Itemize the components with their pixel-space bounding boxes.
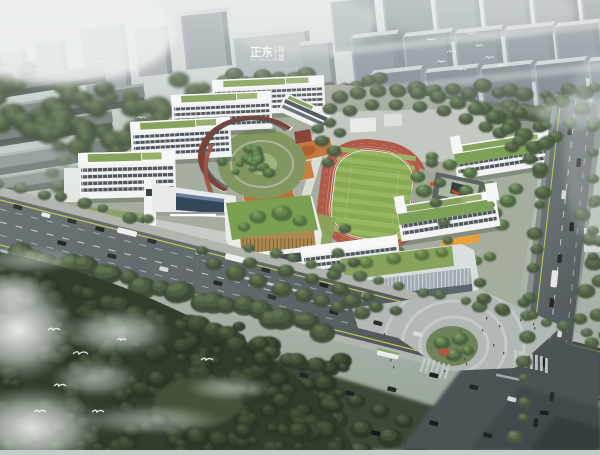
svg-text:视: 视 (278, 45, 285, 54)
svg-text:正东: 正东 (250, 45, 273, 59)
svg-text:觉: 觉 (278, 52, 285, 61)
